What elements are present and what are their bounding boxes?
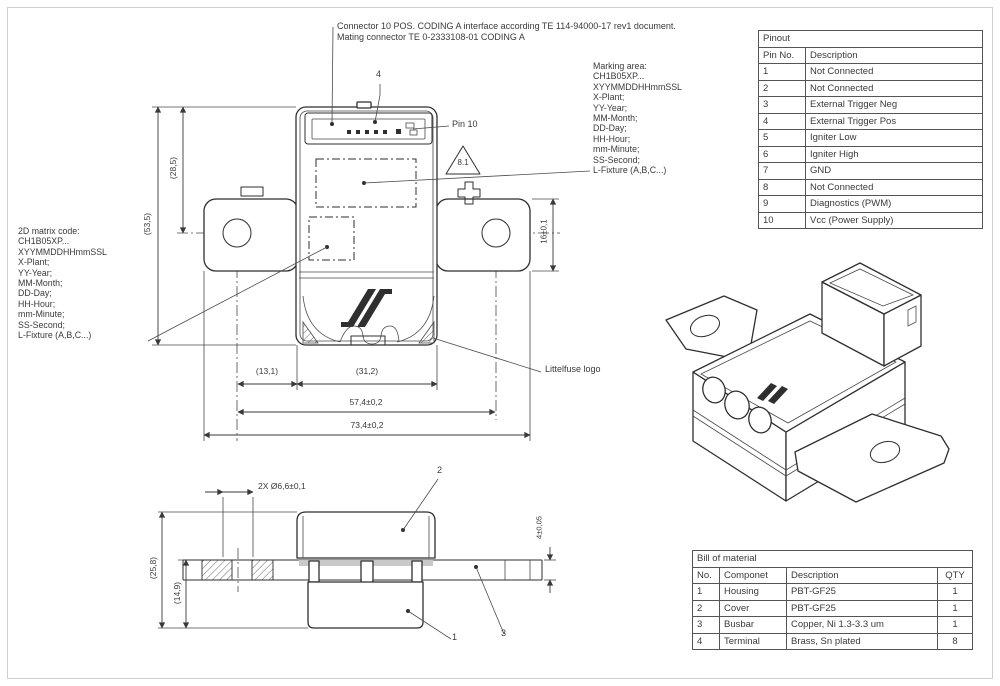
table-row: 10Vcc (Power Supply)	[759, 212, 983, 229]
dim-height-total: (53,5)	[142, 204, 152, 244]
table-cell: Housing	[720, 584, 787, 601]
table-row: 4External Trigger Pos	[759, 113, 983, 130]
table-cell: External Trigger Pos	[806, 113, 983, 130]
column-header: QTY	[938, 567, 973, 584]
text-line: HH-Hour;	[593, 134, 682, 144]
table-cell: Busbar	[720, 617, 787, 634]
table-row: 6Igniter High	[759, 146, 983, 163]
table-cell: Not Connected	[806, 64, 983, 81]
column-header: Description	[806, 47, 983, 64]
table-cell: 8	[759, 179, 806, 196]
table-row: 7GND	[759, 163, 983, 180]
dim-lower-height: (14,9)	[172, 573, 182, 613]
front-view	[148, 27, 590, 441]
text-line: L-Fixture (A,B,C...)	[593, 165, 682, 175]
text-line: X-Plant;	[18, 257, 107, 267]
table-row: 1Not Connected	[759, 64, 983, 81]
dim-total-height: (25,8)	[148, 548, 158, 588]
minus-symbol	[241, 187, 263, 196]
text-line: XYYMMDDHHmmSSL	[18, 247, 107, 257]
cover-section	[297, 512, 435, 558]
text-line: MM-Month;	[18, 278, 107, 288]
right-mount-tab	[436, 199, 530, 271]
text-line: SS-Second;	[593, 155, 682, 165]
table-cell: 1	[938, 617, 973, 634]
table-cell: External Trigger Neg	[806, 97, 983, 114]
bill-of-material-table: Bill of materialNo.ComponetDescriptionQT…	[692, 550, 973, 650]
dim-busbar-thickness: 4±0,05	[535, 508, 544, 548]
table-cell: PBT-GF25	[787, 600, 938, 617]
pinout-table: PinoutPin No.Description1Not Connected2N…	[758, 30, 983, 229]
table-cell: 1	[938, 600, 973, 617]
table-cell: 4	[759, 113, 806, 130]
table-cell: 8	[938, 633, 973, 650]
table-cell: 4	[693, 633, 720, 650]
column-header: Componet	[720, 567, 787, 584]
text-line: L-Fixture (A,B,C...)	[18, 330, 107, 340]
table-cell: Brass, Sn plated	[787, 633, 938, 650]
housing-section	[308, 582, 423, 628]
table-row: 2CoverPBT-GF251	[693, 600, 973, 617]
text-line: DD-Day;	[593, 123, 682, 133]
text-line: YY-Year;	[18, 268, 107, 278]
dim-height-upper: (28,5)	[168, 148, 178, 188]
text-line: X-Plant;	[593, 92, 682, 102]
table-cell: Igniter Low	[806, 130, 983, 147]
callout-housing: 1	[452, 632, 457, 642]
dim-tab-height: 16±0,1	[540, 210, 549, 254]
table-title: Pinout	[759, 31, 983, 48]
logo-label: Littelfuse logo	[545, 364, 601, 374]
table-cell: 3	[759, 97, 806, 114]
table-title: Bill of material	[693, 551, 973, 568]
table-cell: 10	[759, 212, 806, 229]
callout-cover: 2	[437, 465, 442, 475]
table-row: 1HousingPBT-GF251	[693, 584, 973, 601]
connector-note-line1: Connector 10 POS. CODING A interface acc…	[337, 21, 676, 32]
table-cell: 2	[759, 80, 806, 97]
dim-overall-width: 73,4±0,2	[337, 420, 397, 430]
column-header: Description	[787, 567, 938, 584]
table-cell: Not Connected	[806, 179, 983, 196]
table-cell: 3	[693, 617, 720, 634]
dim-hole-pitch: 57,4±0,2	[336, 397, 396, 407]
table-cell: GND	[806, 163, 983, 180]
table-cell: Diagnostics (PWM)	[806, 196, 983, 213]
text-line: DD-Day;	[18, 288, 107, 298]
table-row: 9Diagnostics (PWM)	[759, 196, 983, 213]
table-cell: 2	[693, 600, 720, 617]
table-cell: 9	[759, 196, 806, 213]
text-line: SS-Second;	[18, 320, 107, 330]
triangle-note-label: 8.1	[449, 158, 477, 167]
table-cell: 1	[938, 584, 973, 601]
table-cell: Not Connected	[806, 80, 983, 97]
dim-hole-offset: (13,1)	[247, 366, 287, 376]
dim-body-width: (31,2)	[347, 366, 387, 376]
callout-4: 4	[376, 69, 381, 79]
text-line: MM-Month;	[593, 113, 682, 123]
table-row: 3BusbarCopper, Ni 1.3-3.3 um1	[693, 617, 973, 634]
table-cell: 6	[759, 146, 806, 163]
section-view	[158, 479, 556, 639]
text-line: YY-Year;	[593, 103, 682, 113]
table-cell: Igniter High	[806, 146, 983, 163]
table-row: 2Not Connected	[759, 80, 983, 97]
table-cell: Vcc (Power Supply)	[806, 212, 983, 229]
table-cell: Terminal	[720, 633, 787, 650]
column-header: No.	[693, 567, 720, 584]
table-row: 5Igniter Low	[759, 130, 983, 147]
text-line: XYYMMDDHHmmSSL	[593, 82, 682, 92]
matrix-code-text: 2D matrix code:CH1B05XP...XYYMMDDHHmmSSL…	[18, 226, 107, 340]
text-line: CH1B05XP...	[593, 71, 682, 81]
device-body	[296, 107, 437, 345]
table-row: 8Not Connected	[759, 179, 983, 196]
technical-drawing-page: Connector 10 POS. CODING A interface acc…	[0, 0, 1000, 686]
table-cell: Copper, Ni 1.3-3.3 um	[787, 617, 938, 634]
logo-label-leader	[433, 338, 541, 372]
callout-busbar: 3	[501, 628, 506, 638]
table-cell: Cover	[720, 600, 787, 617]
table-row: 3External Trigger Neg	[759, 97, 983, 114]
isometric-view	[666, 263, 949, 502]
text-line: mm-Minute;	[593, 144, 682, 154]
text-line: HH-Hour;	[18, 299, 107, 309]
table-row: 4TerminalBrass, Sn plated8	[693, 633, 973, 650]
table-cell: 5	[759, 130, 806, 147]
text-line: 2D matrix code:	[18, 226, 107, 236]
table-cell: PBT-GF25	[787, 584, 938, 601]
text-line: mm-Minute;	[18, 309, 107, 319]
marking-area-text: Marking area:CH1B05XP...XYYMMDDHHmmSSLX-…	[593, 61, 682, 175]
pin10-label: Pin 10	[452, 119, 478, 129]
connector-note-line2: Mating connector TE 0-2333108-01 CODING …	[337, 32, 676, 43]
column-header: Pin No.	[759, 47, 806, 64]
table-cell: 1	[759, 64, 806, 81]
table-cell: 7	[759, 163, 806, 180]
dim-hole-dia: 2X Ø6,6±0,1	[258, 481, 306, 491]
table-cell: 1	[693, 584, 720, 601]
text-line: CH1B05XP...	[18, 236, 107, 246]
text-line: Marking area:	[593, 61, 682, 71]
connector-note: Connector 10 POS. CODING A interface acc…	[337, 21, 676, 42]
